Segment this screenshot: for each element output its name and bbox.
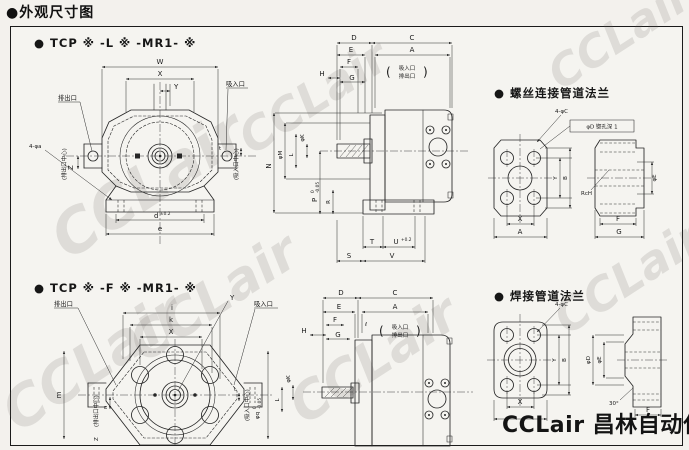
paren-open: (: [386, 65, 391, 79]
section-label-screw-flange: ● 螺丝连接管道法兰: [494, 85, 610, 101]
dim-U-tol: +0.2: [401, 237, 412, 243]
front-view-tcp-f: i k X m n t φq 0 -0.05 排出口 Y: [28, 293, 284, 446]
dim-K: φK: [286, 375, 292, 383]
port-label-line2: 排出口: [399, 72, 416, 80]
holes-label: 4-φC: [555, 109, 568, 115]
flange-side: φD φE 30° F: [586, 317, 669, 417]
dim-e: e: [158, 225, 162, 233]
flange-front: [488, 134, 553, 223]
dimensions: i k X m n t φq 0 -0.05: [55, 304, 268, 439]
dim-q-group: φq 0 -0.05: [252, 398, 263, 419]
dim-G: G: [335, 331, 340, 339]
flange-front: [487, 314, 554, 406]
suction-center-label: (吸入口中心): [243, 389, 251, 421]
discharge-port-label: 排出口: [54, 299, 73, 308]
dim-P-group: P 0 -0.05: [310, 182, 321, 202]
dim-q-tol-lo: -0.05: [257, 398, 263, 409]
dim-D: D: [351, 34, 356, 42]
pump-outline: [320, 110, 470, 214]
dim-V: V: [390, 252, 395, 260]
dimensions: Y B X A: [494, 148, 572, 239]
dim-phiE: φE: [597, 356, 603, 364]
dim-B: B: [563, 176, 569, 180]
dim-P: P: [311, 198, 319, 202]
dim-F: F: [616, 215, 620, 223]
dim-X: X: [518, 398, 523, 406]
dim-T: T: [369, 238, 375, 246]
dim-d-tol: ±0.2: [160, 211, 171, 217]
dim-X: X: [518, 215, 523, 223]
drawing-sheet: ●外观尺寸图 CCLair CCLair CCLair CCLair CCLai…: [0, 0, 689, 450]
port-label-line1: 吸入口: [392, 324, 409, 331]
dim-L: L: [275, 398, 281, 402]
pump-outline: [303, 335, 473, 446]
suction-port-label: 吸入口: [254, 300, 273, 308]
paren-open: (: [379, 324, 384, 338]
dim-A: A: [410, 46, 415, 54]
dim-P-tol-lo: -0.05: [315, 182, 321, 193]
dim-E: E: [337, 303, 341, 311]
brand-logo: CCLair 昌林自动化: [502, 407, 689, 439]
dim-H: H: [301, 327, 306, 335]
dim-R: R: [326, 200, 332, 204]
suction-port-label: 吸入口: [226, 80, 245, 88]
dim-D: D: [338, 289, 343, 297]
flange-side: RcH φE F G: [581, 140, 658, 239]
dim-y: Y: [173, 83, 179, 91]
side-view-tcp-l: D C E A F H G ( 吸入口 排出口 ) N φM: [268, 30, 486, 272]
side-view-tcp-f: D C E A F ℓ ( 吸入口 排出口 ) H G φK L: [273, 288, 485, 446]
port-labels: 排出口 Y 吸入口 (排出口中心) Z (吸入口中心): [54, 294, 278, 441]
dim-Y: Y: [553, 176, 559, 181]
dim-t: t: [219, 146, 222, 152]
dim-H: H: [319, 70, 324, 78]
dim-Y: Y: [552, 358, 558, 363]
paren-close: ): [416, 324, 421, 338]
callouts: 4-φC: [537, 302, 568, 332]
dim-i: i: [171, 304, 173, 312]
port-labels: 排出口 (排出口中心) 4-φa 吸入口 (吸入口中心): [29, 80, 248, 200]
dim-S: S: [347, 252, 352, 260]
screw-flange-view: 4-φC φD 锪孔深 1 Y B X A RcH: [487, 102, 683, 254]
discharge-center-label: (排出口中心): [92, 395, 100, 427]
dimensions: D C E A F ℓ ( 吸入口 排出口 ) H G φK L: [275, 289, 433, 412]
dim-G: G: [349, 74, 354, 82]
dim-F: F: [333, 316, 337, 324]
dim-A: A: [393, 303, 398, 311]
page-title: ●外观尺寸图: [6, 2, 94, 22]
suction-center-label: (吸入口中心): [232, 148, 240, 180]
dimensions: D C E A F H G ( 吸入口 排出口 ) N φM: [265, 34, 452, 263]
foot-holes-label: 4-φa: [29, 144, 41, 150]
dim-N: N: [265, 163, 273, 168]
dim-F: F: [347, 58, 351, 66]
dim-Z: Z: [94, 437, 100, 441]
port-label-line2: 排出口: [392, 331, 409, 339]
dim-B: B: [562, 358, 568, 362]
front-view-tcp-l: W X Y d ±0.2 e Z t 排出口 (排出口中心) 4-φa: [28, 48, 272, 266]
dim-phiE: φE: [652, 174, 658, 182]
dim-x: X: [158, 70, 163, 78]
dim-l-small: ℓ: [364, 322, 367, 328]
dim-K: φK: [300, 134, 306, 142]
dim-E: E: [349, 46, 353, 54]
pump-outline: [78, 339, 272, 446]
dim-C: C: [410, 34, 415, 42]
holes-label: 4-φC: [555, 302, 568, 308]
dim-M: φM: [278, 151, 284, 160]
dim-d: d: [154, 212, 158, 220]
dim-G: G: [616, 228, 621, 236]
dim-n: n: [103, 405, 109, 409]
dim-L: L: [289, 153, 295, 157]
paren-close: ): [423, 65, 428, 79]
thread-label: RcH: [581, 191, 592, 197]
discharge-port-label: 排出口: [58, 93, 77, 102]
dim-m: m: [55, 391, 63, 398]
dim-w: W: [157, 58, 164, 66]
dim-C: C: [393, 289, 398, 297]
counterbore-label: φD 锪孔深 1: [586, 123, 617, 131]
dim-U: U: [393, 238, 398, 246]
dim-Y: Y: [229, 294, 235, 302]
dim-A: A: [518, 228, 523, 236]
dim-q: φq: [255, 412, 261, 419]
port-label-line1: 吸入口: [399, 65, 416, 72]
dim-k: k: [169, 316, 174, 324]
dim-X: X: [169, 328, 174, 336]
dim-phiD: φD: [586, 356, 592, 364]
